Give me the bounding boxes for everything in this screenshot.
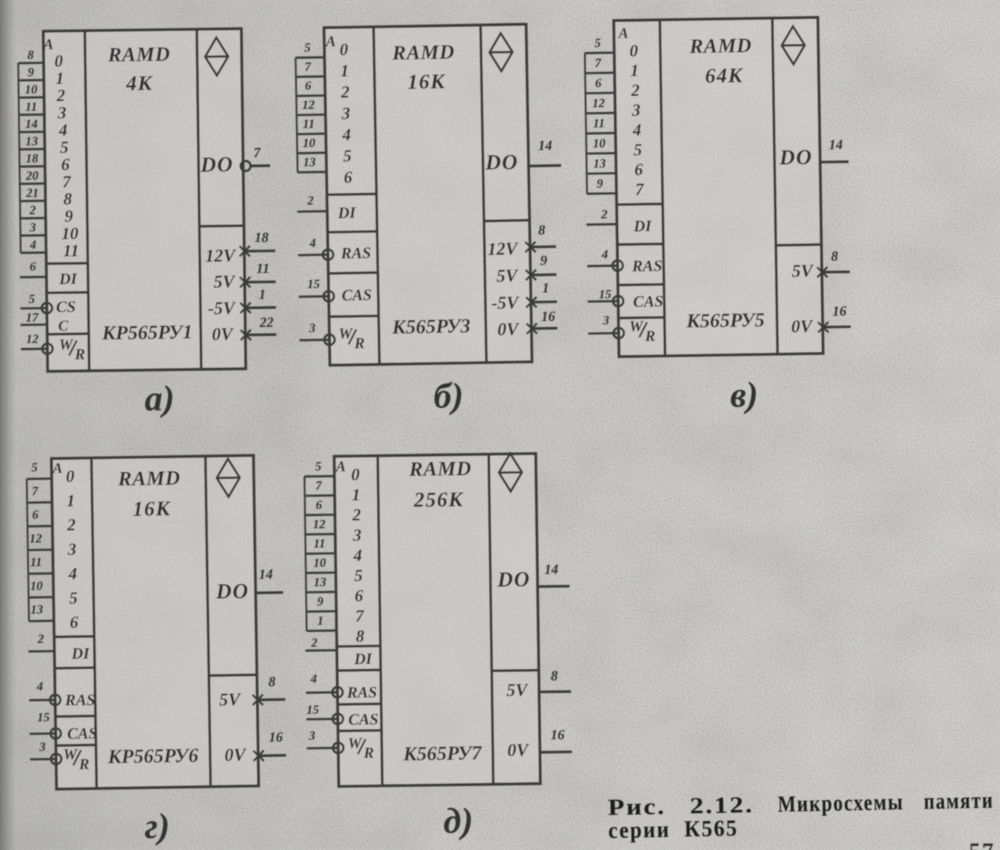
svg-text:12: 12 <box>302 98 315 112</box>
svg-text:CAS: CAS <box>633 293 664 310</box>
svg-text:8: 8 <box>538 223 545 238</box>
svg-text:16: 16 <box>541 310 555 325</box>
svg-text:DO: DO <box>215 579 249 604</box>
svg-text:4: 4 <box>352 546 362 565</box>
svg-text:DI: DI <box>70 646 90 663</box>
svg-text:6: 6 <box>305 79 312 93</box>
svg-text:6: 6 <box>61 155 70 174</box>
svg-text:RAMD: RAMD <box>107 44 171 67</box>
svg-text:7: 7 <box>315 479 322 493</box>
svg-text:1: 1 <box>542 281 549 296</box>
svg-text:14: 14 <box>544 563 558 578</box>
svg-text:CAS: CAS <box>348 711 379 728</box>
svg-text:4: 4 <box>29 238 36 252</box>
svg-text:13: 13 <box>593 156 606 170</box>
svg-text:3: 3 <box>352 526 362 545</box>
svg-text:Микросхемы: Микросхемы <box>778 789 904 816</box>
svg-text:DI: DI <box>337 205 357 222</box>
svg-text:4: 4 <box>341 125 351 144</box>
svg-text:DI: DI <box>633 218 653 235</box>
svg-text:7: 7 <box>595 56 602 70</box>
svg-text:2: 2 <box>66 515 76 534</box>
svg-text:13: 13 <box>25 134 38 148</box>
svg-text:К565РУ3: К565РУ3 <box>391 315 471 338</box>
svg-text:5: 5 <box>29 292 35 306</box>
svg-text:4К: 4К <box>125 71 154 95</box>
svg-text:К565: К565 <box>684 816 738 842</box>
svg-text:2: 2 <box>340 83 350 102</box>
svg-text:8: 8 <box>27 48 34 62</box>
svg-text:5: 5 <box>343 146 352 165</box>
svg-text:5V: 5V <box>792 261 815 281</box>
svg-text:21: 21 <box>25 186 39 200</box>
svg-text:г): г) <box>144 806 170 846</box>
svg-text:2: 2 <box>37 632 44 646</box>
svg-text:памяти: памяти <box>924 788 994 814</box>
svg-text:-5V: -5V <box>208 298 237 318</box>
svg-text:4: 4 <box>58 120 68 139</box>
svg-text:RAS: RAS <box>340 245 372 263</box>
svg-text:К565РУ7: К565РУ7 <box>402 742 483 765</box>
svg-text:15: 15 <box>306 703 319 717</box>
svg-text:15: 15 <box>599 287 612 301</box>
svg-text:д): д) <box>443 801 473 841</box>
svg-text:15: 15 <box>37 710 50 724</box>
svg-text:-5V: -5V <box>491 292 520 313</box>
svg-text:3: 3 <box>308 321 315 335</box>
svg-text:22: 22 <box>259 316 274 331</box>
svg-text:0V: 0V <box>212 324 235 344</box>
svg-text:RAMD: RAMD <box>391 42 455 65</box>
svg-text:CAS: CAS <box>67 725 98 742</box>
svg-text:0: 0 <box>54 52 63 71</box>
svg-text:9: 9 <box>597 177 604 191</box>
svg-text:C: C <box>58 318 69 334</box>
svg-text:64К: 64К <box>705 63 744 88</box>
svg-text:DO: DO <box>778 145 812 170</box>
svg-text:12V: 12V <box>487 238 519 259</box>
svg-text:18: 18 <box>254 231 268 246</box>
svg-text:6: 6 <box>595 76 602 90</box>
svg-text:5V: 5V <box>496 265 519 285</box>
svg-text:9: 9 <box>317 594 324 608</box>
svg-text:14: 14 <box>25 117 38 131</box>
svg-text:10: 10 <box>25 82 38 96</box>
svg-text:13: 13 <box>314 575 327 589</box>
svg-text:14: 14 <box>259 568 273 583</box>
svg-text:5: 5 <box>594 36 600 50</box>
svg-text:RAMD: RAMD <box>117 468 181 491</box>
svg-text:10: 10 <box>303 136 316 150</box>
svg-text:12V: 12V <box>205 245 237 265</box>
svg-text:8: 8 <box>356 627 365 646</box>
svg-text:R: R <box>78 756 90 773</box>
svg-text:5: 5 <box>31 460 37 474</box>
svg-text:8: 8 <box>831 250 838 265</box>
svg-text:12: 12 <box>592 96 605 110</box>
svg-text:1: 1 <box>340 61 349 80</box>
svg-text:14: 14 <box>829 138 843 153</box>
svg-text:DO: DO <box>199 152 233 176</box>
svg-text:10: 10 <box>313 556 326 570</box>
svg-text:3: 3 <box>602 313 609 327</box>
svg-text:3: 3 <box>38 740 45 754</box>
svg-text:DI: DI <box>58 271 78 288</box>
svg-text:RAS: RAS <box>631 258 663 275</box>
svg-text:4: 4 <box>309 236 316 250</box>
svg-text:10: 10 <box>593 136 606 150</box>
svg-text:16К: 16К <box>407 69 446 94</box>
svg-text:0: 0 <box>629 41 638 60</box>
svg-text:3: 3 <box>631 101 641 120</box>
svg-text:2: 2 <box>56 86 66 105</box>
svg-text:16: 16 <box>832 305 846 320</box>
svg-text:в): в) <box>730 374 759 414</box>
svg-text:5: 5 <box>315 459 321 473</box>
svg-text:5: 5 <box>69 588 78 607</box>
svg-text:а): а) <box>144 378 175 418</box>
svg-text:11: 11 <box>593 116 605 130</box>
svg-text:серии: серии <box>608 817 670 843</box>
svg-text:2.12.: 2.12. <box>690 792 754 818</box>
svg-text:RAMD: RAMD <box>688 35 752 58</box>
svg-text:CAS: CAS <box>341 287 372 305</box>
svg-text:4: 4 <box>67 564 77 583</box>
svg-text:3: 3 <box>341 104 351 123</box>
svg-text:18: 18 <box>26 151 39 165</box>
svg-text:13: 13 <box>30 602 43 616</box>
svg-text:5: 5 <box>60 138 69 157</box>
svg-text:16: 16 <box>551 728 565 743</box>
svg-text:12: 12 <box>26 332 39 346</box>
svg-text:R: R <box>363 745 375 762</box>
svg-text:2: 2 <box>630 81 640 100</box>
svg-text:6: 6 <box>344 168 353 187</box>
svg-text:3: 3 <box>67 540 77 559</box>
svg-text:R: R <box>353 335 365 352</box>
svg-text:4: 4 <box>601 247 608 261</box>
svg-text:6: 6 <box>70 613 79 632</box>
svg-text:0V: 0V <box>497 319 520 339</box>
svg-text:A: A <box>51 461 62 477</box>
svg-text:12: 12 <box>313 517 326 531</box>
svg-text:1: 1 <box>66 491 75 510</box>
svg-text:20: 20 <box>25 169 39 183</box>
svg-text:RAMD: RAMD <box>408 458 472 481</box>
svg-text:5V: 5V <box>219 689 242 709</box>
svg-text:13: 13 <box>303 155 316 169</box>
svg-text:14: 14 <box>538 139 552 154</box>
svg-text:0: 0 <box>340 40 349 59</box>
svg-text:5: 5 <box>304 41 310 55</box>
svg-text:0V: 0V <box>224 745 247 765</box>
svg-text:RAS: RAS <box>64 692 96 709</box>
svg-text:1: 1 <box>317 614 323 628</box>
svg-text:2: 2 <box>600 207 607 221</box>
svg-text:11: 11 <box>256 262 269 277</box>
svg-text:3: 3 <box>57 103 67 122</box>
svg-text:0V: 0V <box>791 316 814 336</box>
svg-text:R: R <box>644 328 656 345</box>
svg-text:1: 1 <box>259 288 266 303</box>
svg-text:1: 1 <box>55 69 64 88</box>
svg-text:6: 6 <box>355 586 364 605</box>
svg-text:К565РУ5: К565РУ5 <box>685 309 765 332</box>
svg-text:4: 4 <box>36 679 43 693</box>
svg-text:6: 6 <box>316 498 323 512</box>
svg-text:0: 0 <box>351 465 360 484</box>
svg-text:DI: DI <box>353 651 373 668</box>
svg-text:A: A <box>325 34 336 50</box>
svg-text:6: 6 <box>634 160 643 179</box>
svg-text:256К: 256К <box>413 487 465 512</box>
svg-text:1: 1 <box>630 61 639 80</box>
svg-text:7: 7 <box>253 146 261 161</box>
svg-text:DO: DO <box>496 567 530 591</box>
svg-text:R: R <box>74 346 86 363</box>
svg-text:11: 11 <box>30 555 42 569</box>
svg-text:2: 2 <box>310 636 317 650</box>
svg-text:9: 9 <box>540 254 547 269</box>
svg-text:5: 5 <box>354 566 363 585</box>
svg-text:57: 57 <box>969 839 995 850</box>
svg-text:2: 2 <box>351 505 361 524</box>
svg-text:11: 11 <box>25 100 37 114</box>
svg-text:б): б) <box>433 375 464 416</box>
svg-text:5V: 5V <box>506 680 529 700</box>
svg-text:3: 3 <box>29 220 36 234</box>
svg-text:16К: 16К <box>132 496 171 521</box>
svg-text:CS: CS <box>56 299 76 316</box>
svg-text:12: 12 <box>29 531 42 545</box>
svg-text:1: 1 <box>352 485 361 504</box>
svg-text:9: 9 <box>64 207 73 226</box>
svg-text:A: A <box>617 26 628 42</box>
svg-text:4: 4 <box>310 672 317 686</box>
svg-text:16: 16 <box>269 730 283 745</box>
svg-text:8: 8 <box>63 189 72 208</box>
svg-text:7: 7 <box>304 60 311 74</box>
svg-text:7: 7 <box>32 484 39 498</box>
svg-text:15: 15 <box>307 277 320 291</box>
svg-text:10: 10 <box>30 579 43 593</box>
svg-text:DO: DO <box>484 150 518 175</box>
svg-text:8: 8 <box>268 675 275 690</box>
svg-text:A: A <box>42 37 53 53</box>
svg-text:RAS: RAS <box>346 684 378 701</box>
svg-text:6: 6 <box>32 508 39 522</box>
svg-text:2: 2 <box>306 193 313 207</box>
svg-text:6: 6 <box>30 259 37 273</box>
svg-text:КР565РУ6: КР565РУ6 <box>107 745 199 768</box>
svg-text:5V: 5V <box>213 271 236 291</box>
svg-text:КР565РУ1: КР565РУ1 <box>101 321 193 344</box>
svg-text:9: 9 <box>28 65 35 79</box>
svg-text:2: 2 <box>28 203 35 217</box>
svg-text:0V: 0V <box>507 740 530 760</box>
svg-text:11: 11 <box>313 536 325 550</box>
svg-text:17: 17 <box>26 310 39 324</box>
svg-text:11: 11 <box>63 241 79 260</box>
svg-text:5: 5 <box>633 140 642 159</box>
svg-text:11: 11 <box>303 117 315 131</box>
svg-text:A: A <box>335 459 346 475</box>
svg-text:8: 8 <box>551 669 558 684</box>
svg-text:3: 3 <box>308 729 315 743</box>
svg-text:0: 0 <box>66 467 75 486</box>
svg-text:4: 4 <box>632 120 642 139</box>
